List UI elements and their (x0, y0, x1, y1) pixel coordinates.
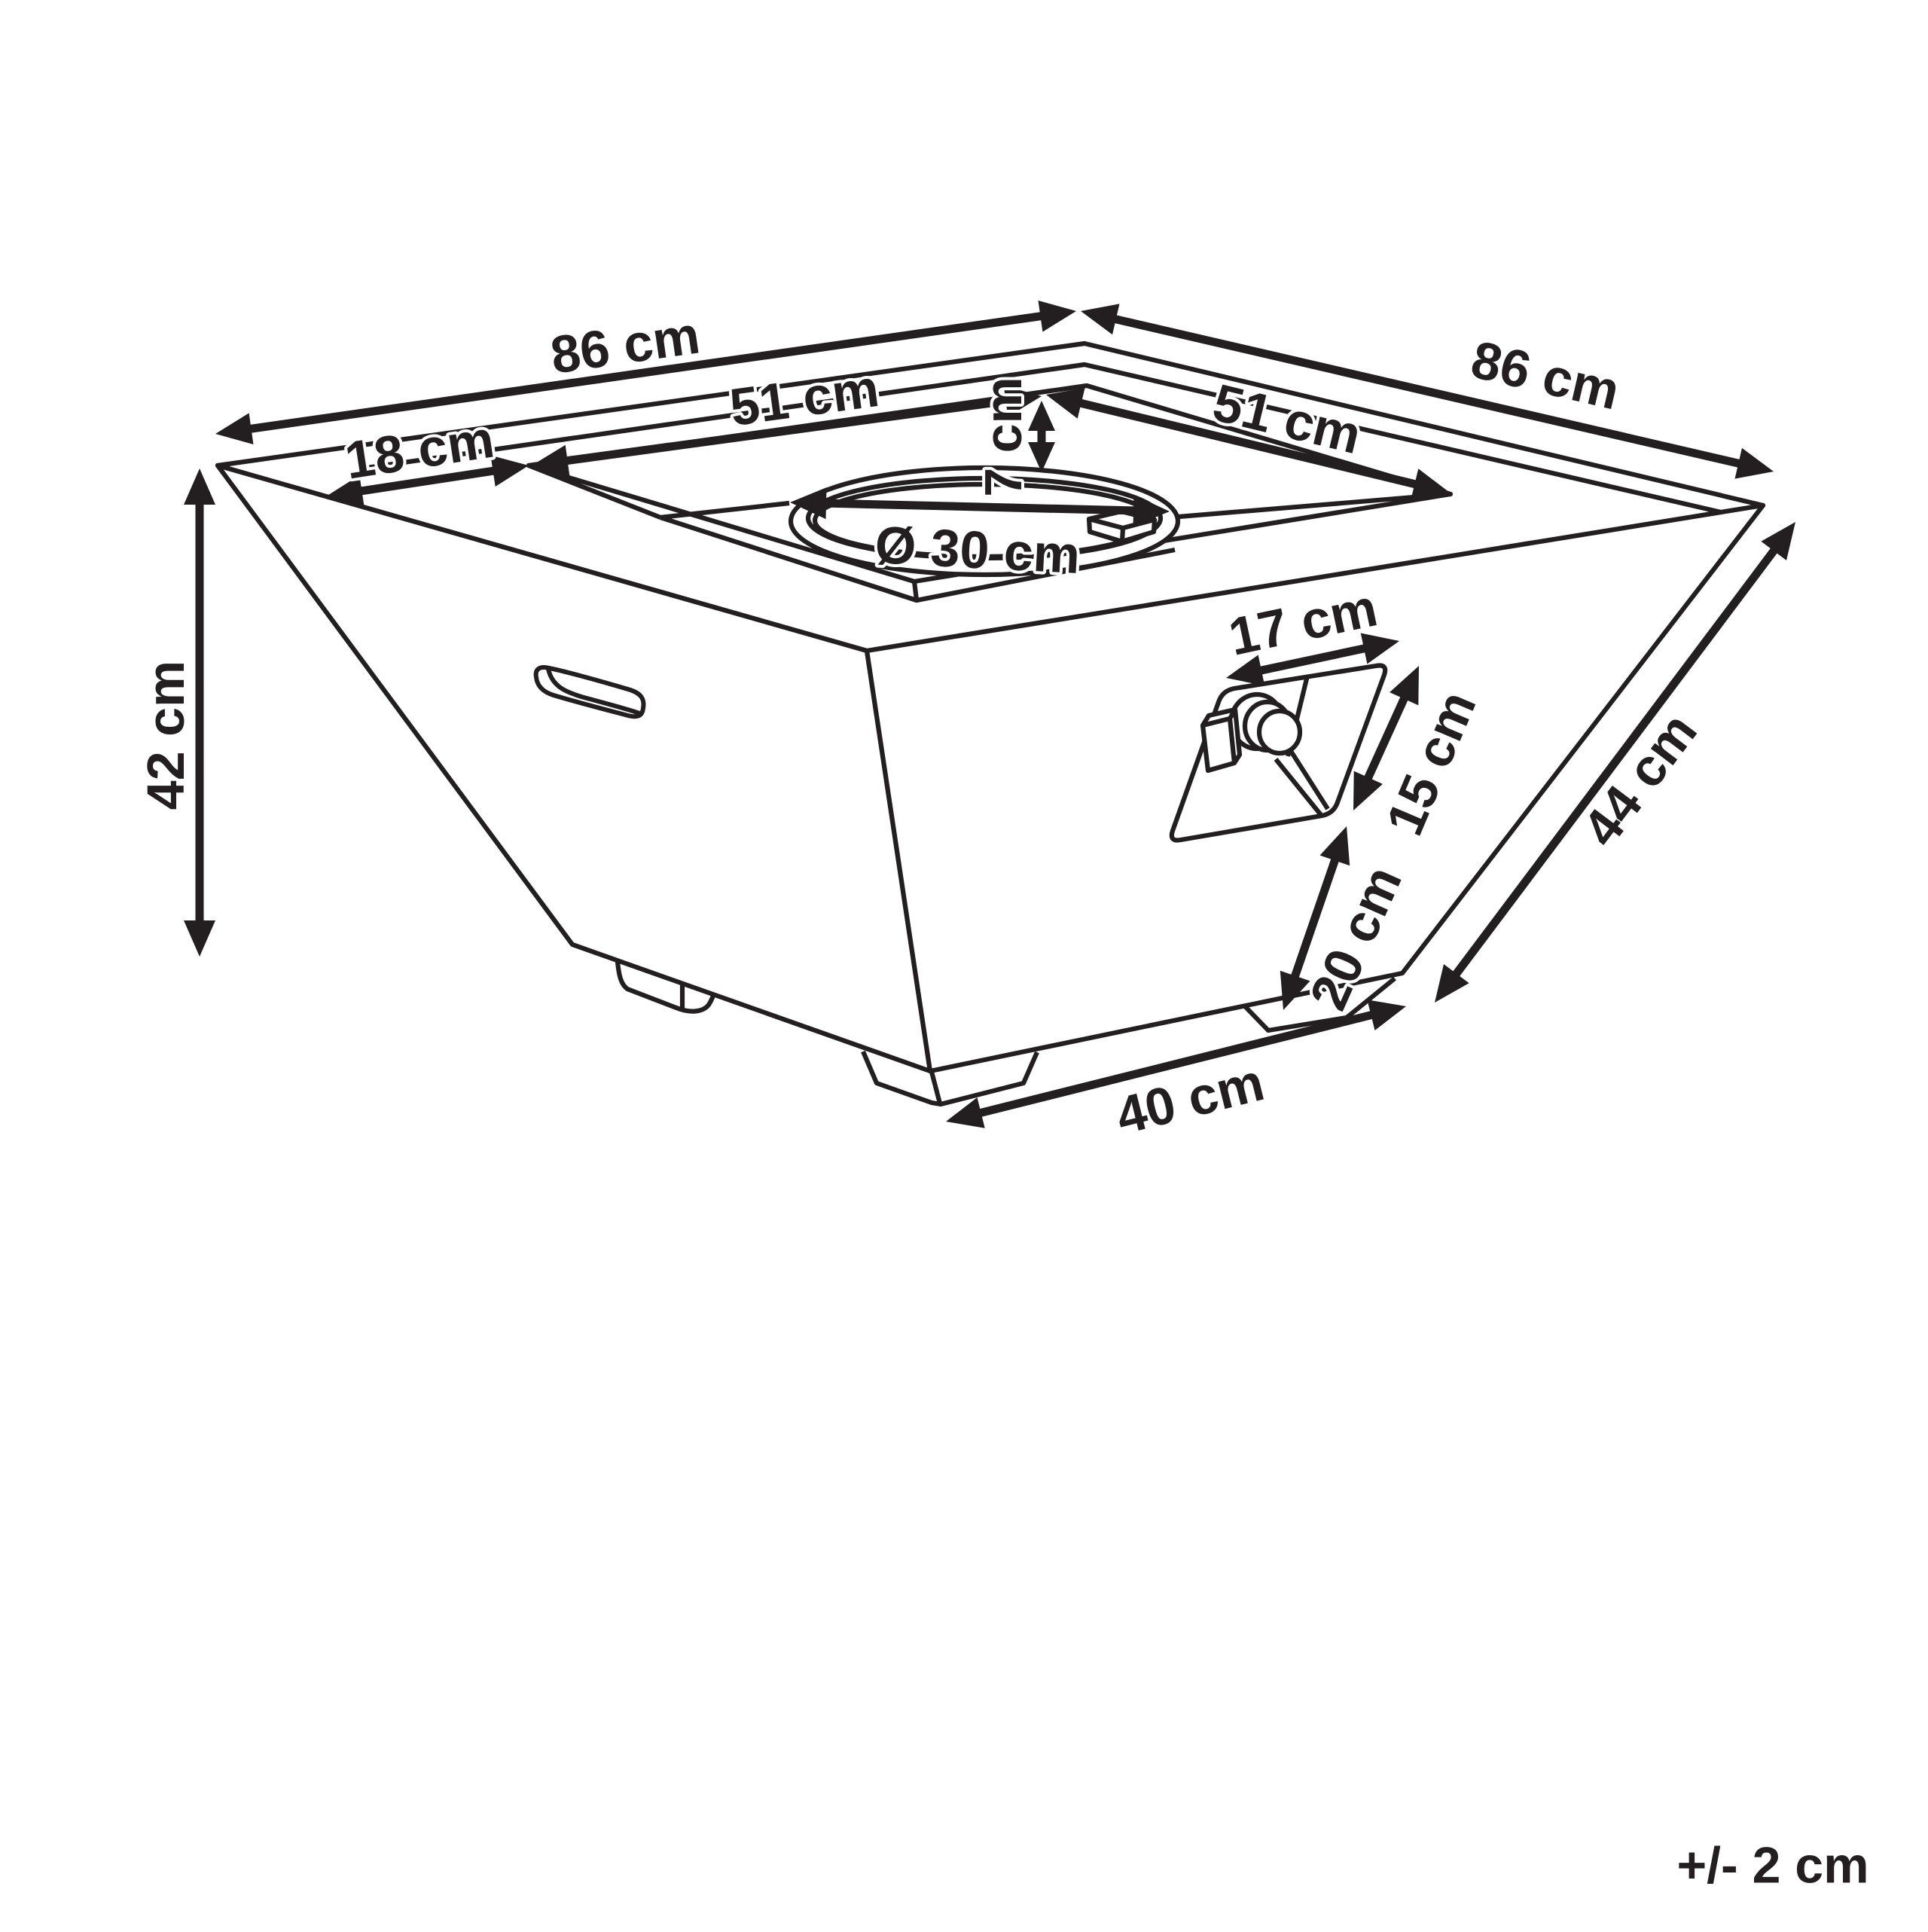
svg-text:42 cm: 42 cm (136, 661, 195, 810)
svg-text:+/- 2 cm: +/- 2 cm (1676, 1836, 1869, 1894)
svg-text:Ø 30 cm: Ø 30 cm (874, 515, 1081, 584)
svg-text:7 cm: 7 cm (974, 377, 1033, 497)
